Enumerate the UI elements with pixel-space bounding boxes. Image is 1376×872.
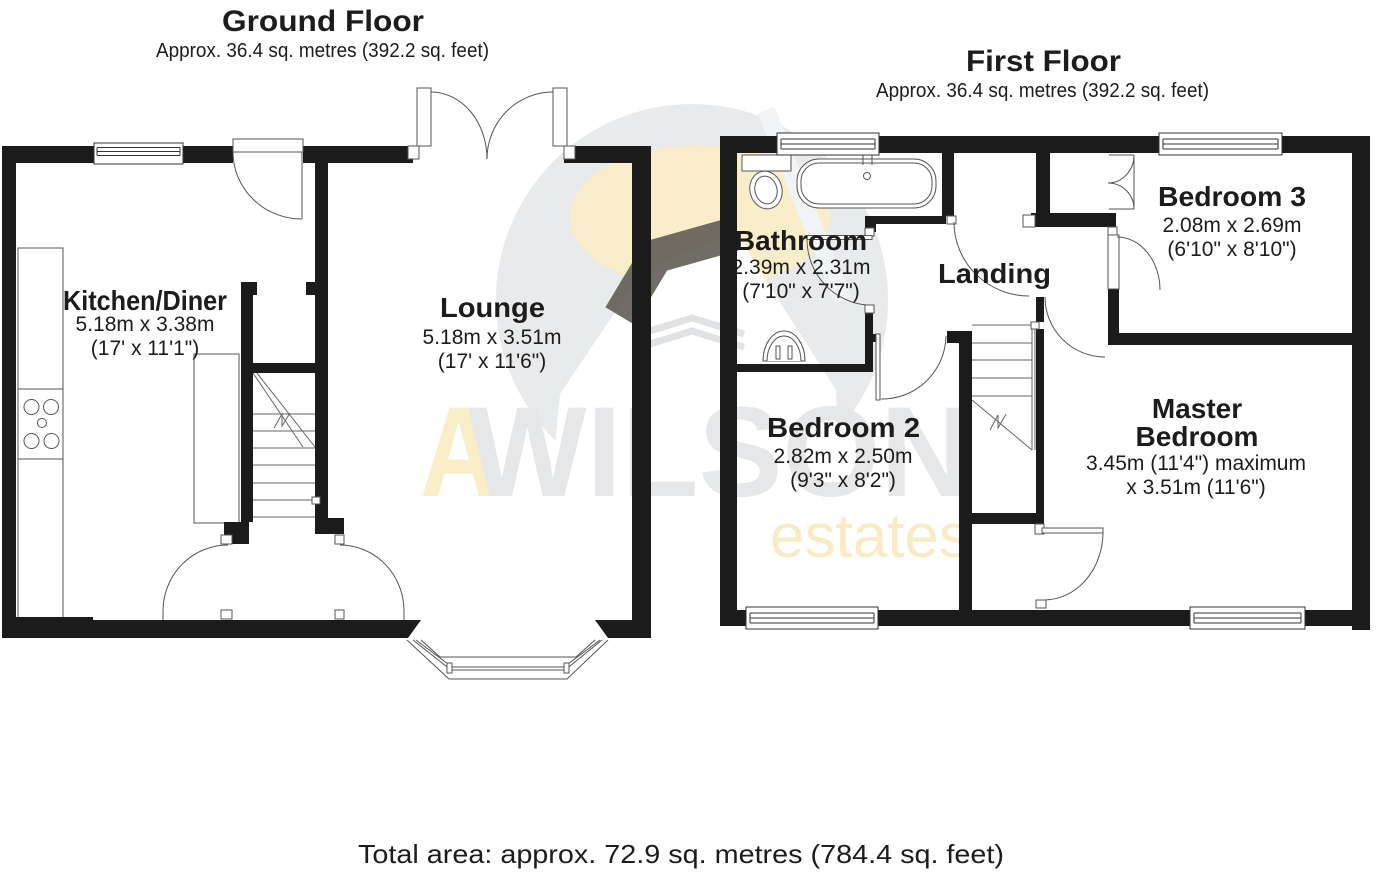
svg-text:Total area: approx. 72.9 sq. m: Total area: approx. 72.9 sq. metres (784… <box>358 839 1004 869</box>
svg-text:2.82m x 2.50m: 2.82m x 2.50m <box>774 445 913 468</box>
svg-text:Approx. 36.4 sq. metres (392.2: Approx. 36.4 sq. metres (392.2 sq. feet) <box>876 80 1209 102</box>
svg-text:(6'10" x 8'10"): (6'10" x 8'10") <box>1167 238 1296 261</box>
svg-text:3.45m (11'4") maximum: 3.45m (11'4") maximum <box>1086 452 1306 475</box>
svg-text:estates: estates <box>770 502 970 571</box>
svg-text:2.08m x 2.69m: 2.08m x 2.69m <box>1163 214 1302 237</box>
svg-text:x 3.51m (11'6"): x 3.51m (11'6") <box>1126 476 1265 499</box>
svg-text:(9'3" x 8'2"): (9'3" x 8'2") <box>790 469 896 492</box>
svg-text:Approx. 36.4 sq. metres (392.2: Approx. 36.4 sq. metres (392.2 sq. feet) <box>156 40 489 62</box>
svg-text:(7'10" x 7'7"): (7'10" x 7'7") <box>742 280 859 303</box>
svg-text:Ground Floor: Ground Floor <box>222 5 424 38</box>
svg-text:First Floor: First Floor <box>966 45 1121 78</box>
svg-text:5.18m x 3.51m: 5.18m x 3.51m <box>423 326 562 349</box>
svg-text:2.39m x 2.31m: 2.39m x 2.31m <box>732 256 871 279</box>
svg-text:Bedroom 2: Bedroom 2 <box>767 412 920 443</box>
svg-text:Master: Master <box>1152 393 1242 424</box>
svg-text:5.18m x 3.38m: 5.18m x 3.38m <box>76 313 215 336</box>
svg-text:Bedroom 3: Bedroom 3 <box>1158 181 1306 212</box>
svg-text:(17' x 11'6"): (17' x 11'6") <box>438 350 546 373</box>
svg-text:Lounge: Lounge <box>440 292 545 323</box>
svg-text:(17' x 11'1"): (17' x 11'1") <box>91 337 199 360</box>
svg-text:Bedroom: Bedroom <box>1136 421 1259 452</box>
svg-text:Landing: Landing <box>938 258 1051 289</box>
svg-text:Kitchen/Diner: Kitchen/Diner <box>63 285 227 316</box>
svg-text:Bathroom: Bathroom <box>735 225 867 256</box>
